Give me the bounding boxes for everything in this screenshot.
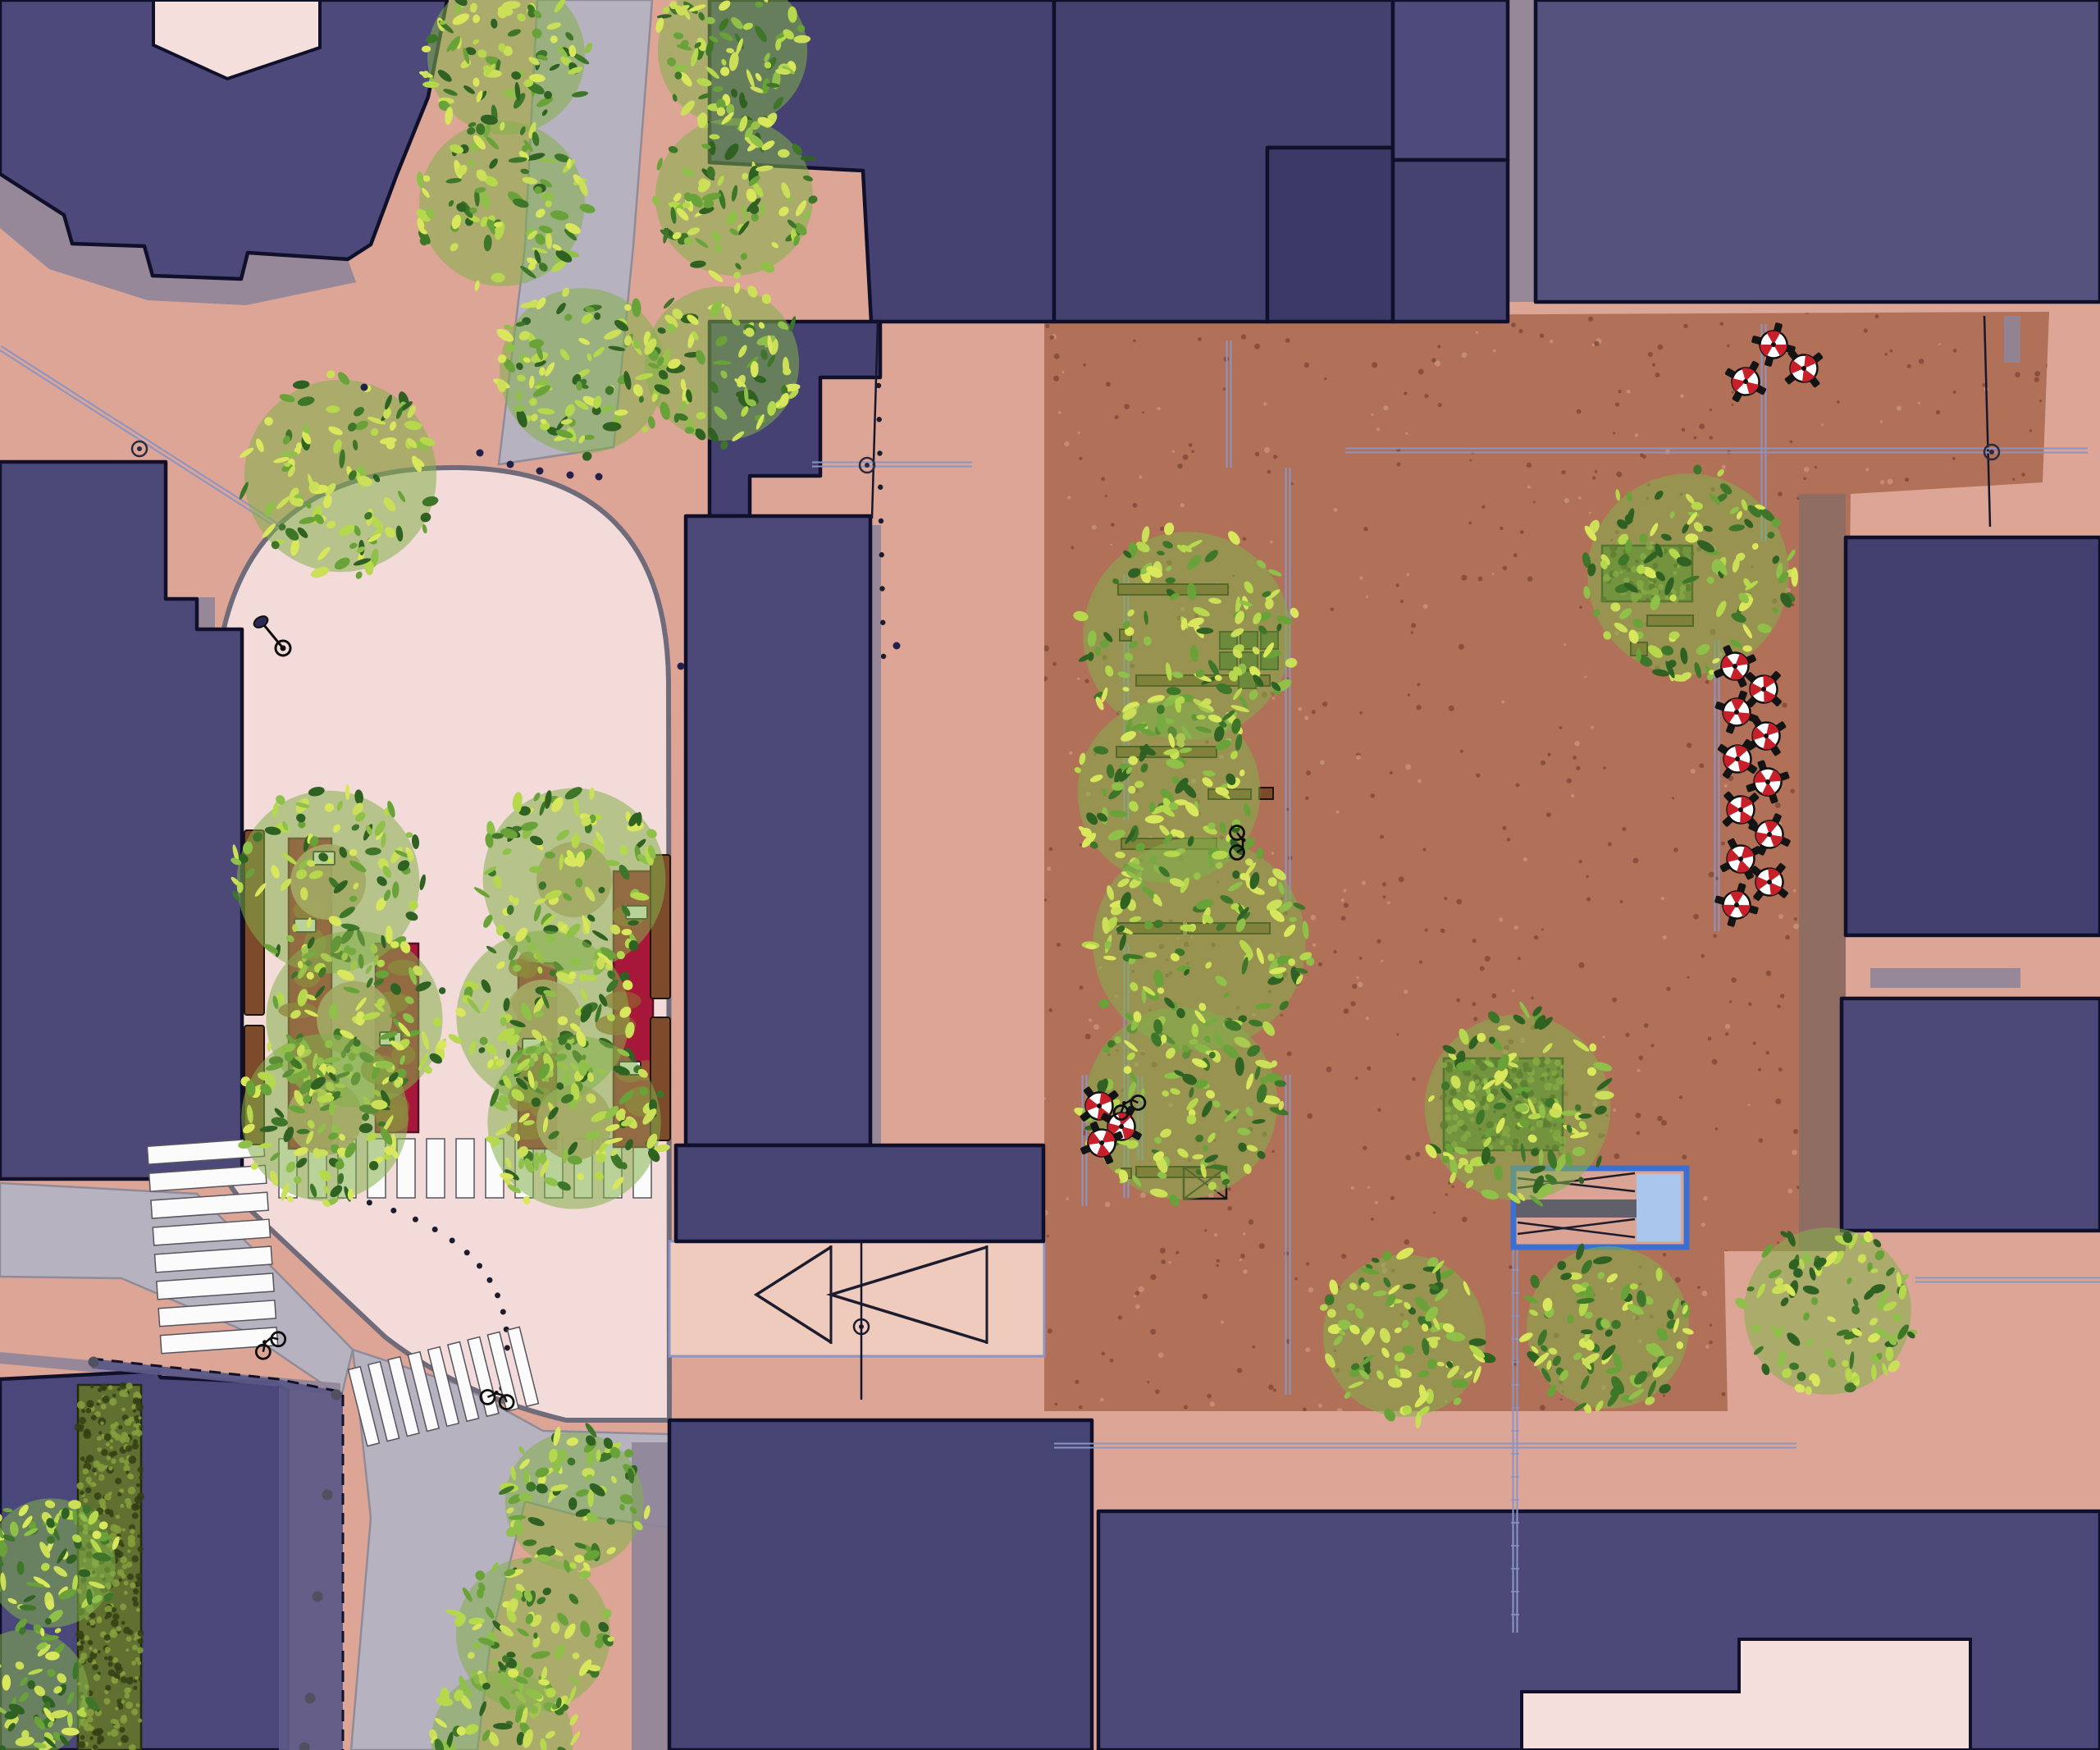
canopy-column bbox=[331, 1390, 342, 1400]
parasol-table bbox=[1783, 348, 1824, 389]
bollard bbox=[596, 473, 603, 481]
building-bottom-mid bbox=[669, 1420, 1092, 1750]
ramp-landing bbox=[1637, 1174, 1681, 1241]
building-top-b-dark bbox=[1267, 148, 1393, 322]
building-mid-lower bbox=[686, 516, 870, 1145]
building-right-b bbox=[1842, 998, 2100, 1231]
tree-canopy-base bbox=[1587, 473, 1789, 675]
building-top-col-upper bbox=[1393, 0, 1508, 160]
guide-dot bbox=[879, 586, 884, 591]
zebra-stripe bbox=[427, 1139, 445, 1198]
bollard bbox=[567, 472, 574, 479]
guide-dot bbox=[877, 450, 882, 455]
parasol-table bbox=[1745, 670, 1783, 708]
canopy-column bbox=[89, 1357, 99, 1368]
guide-dot bbox=[879, 519, 883, 523]
canopy-column bbox=[313, 1592, 323, 1602]
guide-dot bbox=[879, 552, 884, 557]
site-plan bbox=[0, 0, 2100, 1750]
building-shadow bbox=[1870, 968, 2020, 988]
parasol-table bbox=[1750, 862, 1790, 902]
building-shadow bbox=[2004, 316, 2020, 363]
tree-foliage bbox=[406, 832, 413, 838]
guide-dot bbox=[504, 1345, 510, 1350]
chevron-lane bbox=[669, 1241, 1044, 1356]
guide-dot bbox=[464, 1250, 470, 1255]
guide-dot bbox=[486, 1277, 492, 1283]
bollard bbox=[361, 384, 368, 391]
building-right-a bbox=[1846, 537, 2100, 935]
site-plan-svg bbox=[0, 0, 2100, 1750]
canopy-column bbox=[322, 1490, 333, 1501]
tree-foliage bbox=[1144, 921, 1153, 930]
tree-foliage bbox=[1636, 648, 1641, 662]
canopy-column bbox=[305, 1693, 316, 1704]
guide-dot bbox=[495, 1292, 500, 1298]
guide-dot bbox=[500, 1309, 506, 1314]
tree-foliage bbox=[1811, 1297, 1818, 1305]
guide-dot bbox=[367, 1199, 372, 1205]
guide-dot bbox=[877, 417, 882, 422]
building-shadow bbox=[197, 597, 215, 629]
guide-dot bbox=[881, 654, 886, 659]
guide-dot bbox=[450, 1237, 455, 1243]
tree-foliage bbox=[751, 361, 759, 377]
tree-foliage bbox=[440, 1687, 450, 1706]
bollard bbox=[893, 642, 901, 650]
building-mid-band bbox=[676, 1145, 1043, 1241]
zebra-stripe bbox=[456, 1139, 474, 1198]
building-shadow bbox=[1508, 0, 1536, 302]
guide-dot bbox=[878, 485, 883, 490]
guide-dot bbox=[880, 620, 885, 625]
bollard bbox=[477, 450, 484, 457]
guide-dot bbox=[477, 1263, 482, 1268]
tree-canopy-base bbox=[419, 121, 585, 286]
wood-bench bbox=[1259, 788, 1273, 799]
bollard bbox=[678, 663, 685, 670]
plaza-brown-edge-strip bbox=[1799, 494, 1846, 1251]
guide-dot bbox=[432, 1227, 438, 1232]
tree-foliage bbox=[492, 833, 504, 838]
guide-dot bbox=[413, 1217, 418, 1222]
building-top-right bbox=[1536, 0, 2100, 302]
ramp-center-strip bbox=[1516, 1199, 1637, 1218]
tree-foliage bbox=[594, 313, 600, 320]
tree-foliage bbox=[685, 427, 695, 434]
guide-dot bbox=[876, 383, 881, 388]
guide-dot bbox=[390, 1208, 396, 1213]
tree-foliage bbox=[45, 1618, 52, 1624]
building-top-col-lower bbox=[1393, 160, 1508, 322]
tree-foliage bbox=[1196, 628, 1213, 634]
bollard bbox=[507, 461, 514, 468]
bollard bbox=[536, 468, 544, 475]
